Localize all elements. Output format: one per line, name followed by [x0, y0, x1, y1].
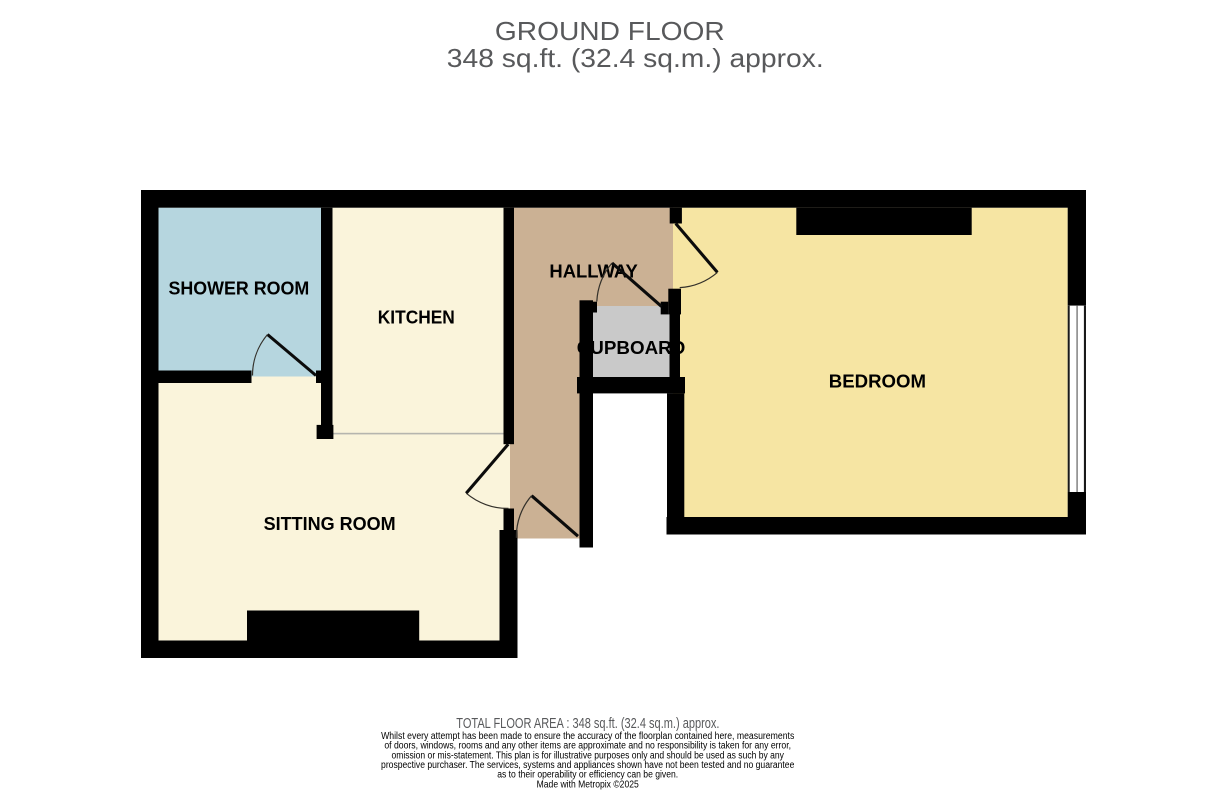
svg-text:SITTING ROOM: SITTING ROOM	[264, 513, 396, 534]
svg-text:HALLWAY: HALLWAY	[549, 260, 638, 281]
svg-text:348 sq.ft. (32.4 sq.m.) approx: 348 sq.ft. (32.4 sq.m.) approx.	[447, 43, 824, 73]
svg-text:TOTAL FLOOR AREA : 348 sq.ft.: TOTAL FLOOR AREA : 348 sq.ft. (32.4 sq.m…	[456, 716, 719, 732]
svg-text:GROUND FLOOR: GROUND FLOOR	[495, 16, 725, 46]
svg-text:CUPBOARD: CUPBOARD	[577, 337, 686, 358]
svg-text:KITCHEN: KITCHEN	[378, 307, 455, 328]
svg-text:SHOWER ROOM: SHOWER ROOM	[169, 278, 310, 299]
svg-text:BEDROOM: BEDROOM	[829, 371, 926, 392]
svg-text:Made with Metropix ©2025: Made with Metropix ©2025	[537, 778, 639, 790]
